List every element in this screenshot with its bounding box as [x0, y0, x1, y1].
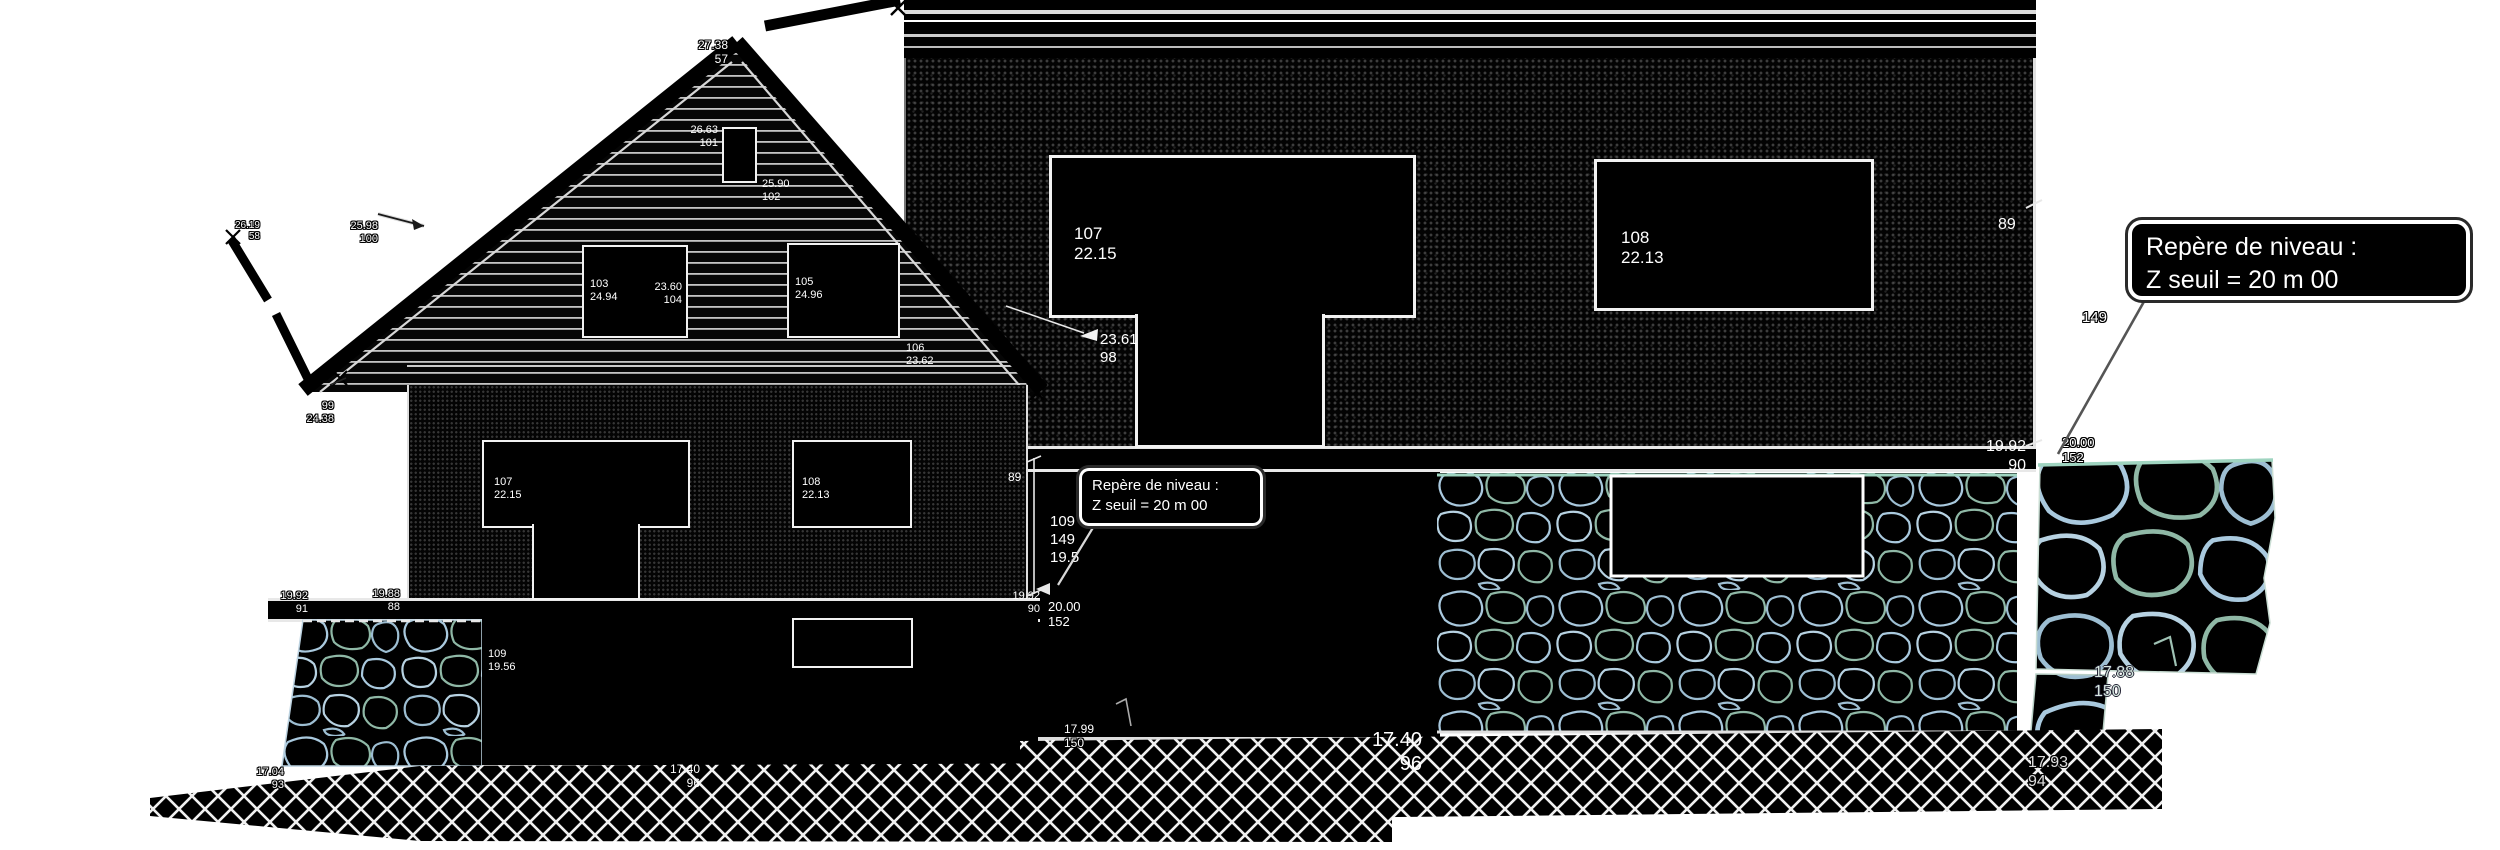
- large-door-107: [1135, 314, 1325, 448]
- slab-right-level-label: 19.9290: [994, 564, 1040, 642]
- slab-left-level-label: 19.9291: [266, 564, 308, 642]
- window-103-label: 10324.94: [590, 252, 618, 330]
- large-door-sill-label: 23.6198: [1100, 296, 1138, 402]
- attic-sill-label: 25.90102: [762, 152, 790, 230]
- ridge-extension: [765, 0, 900, 26]
- large-window-108: 10822.13: [1594, 159, 1874, 311]
- large-point-149-label: 149: [2082, 274, 2107, 362]
- window-105-label: 10524.96: [795, 250, 823, 328]
- slab-left2-level-label: 19.8888: [358, 562, 400, 640]
- callout-large-line2: Z seuil = 20 m 00: [2146, 264, 2452, 297]
- roof-tip-level-label: 9924.38: [292, 374, 334, 452]
- attic-top-label: 26.63101: [656, 98, 718, 176]
- large-floor-slab: [904, 446, 2036, 472]
- window-105-sill-label: 10623.62: [906, 316, 934, 394]
- right-stone-bottom-label: 17.88150: [2094, 626, 2134, 739]
- elevation-drawing: 10722.15 10822.13 23.6198 89 149 19.9290…: [0, 0, 2500, 850]
- large-basement-point-labels: 10914919.5: [1050, 478, 1079, 602]
- callout-large-line1: Repère de niveau :: [2146, 231, 2452, 264]
- window-103-sill-label: 23.60104: [654, 255, 682, 333]
- window-108-label: 10822.13: [802, 450, 830, 528]
- large-basement-stone-wall: [1435, 470, 2020, 737]
- small-attic-window-101: [722, 127, 757, 183]
- small-window-108: 10822.13: [792, 440, 912, 528]
- level-callout-small: Repère de niveau : Z seuil = 20 m 00: [1079, 468, 1263, 526]
- callout-small-line1: Repère de niveau :: [1092, 476, 1250, 496]
- right-ground-label: 17.9394: [2028, 716, 2068, 829]
- large-window-108-label: 10822.13: [1621, 188, 1664, 308]
- verge-level-label: 26.1958: [214, 196, 260, 267]
- small-door-107: [532, 524, 640, 600]
- callout-small-line2: Z seuil = 20 m 00: [1092, 496, 1250, 516]
- ridge-level-label: 27.3857: [668, 10, 728, 95]
- small-window-107: 10722.15: [482, 440, 690, 528]
- large-ground-level-label: 17.4096: [1352, 682, 1422, 824]
- eaves-level-label: 25.98100: [316, 194, 378, 272]
- large-dim-89-label: 89: [1998, 178, 2016, 272]
- small-basement-window: [792, 618, 913, 668]
- ground-hatch: [140, 718, 2180, 850]
- mid-level-1799-label: 17.99150: [1064, 694, 1094, 779]
- small-window-103: 10324.94 23.60104: [582, 245, 688, 338]
- small-dim-89-label: 89: [1008, 442, 1021, 513]
- large-window-107: 10722.15: [1049, 155, 1416, 318]
- window-107-label: 10722.15: [494, 450, 522, 528]
- level-callout-large: Repère de niveau : Z seuil = 20 m 00: [2128, 220, 2470, 300]
- right-level-20-label: 20.00152: [2062, 404, 2095, 496]
- large-basement-window: [1611, 476, 1863, 576]
- ground-left-level-label: 17.0493: [236, 740, 284, 818]
- small-ground-level-label: 17.4096: [652, 734, 700, 819]
- large-slab-level-label: 19.9290: [1962, 400, 2026, 513]
- basement-109-label: 10919.56: [488, 622, 516, 700]
- small-window-105: 10524.96: [787, 243, 900, 338]
